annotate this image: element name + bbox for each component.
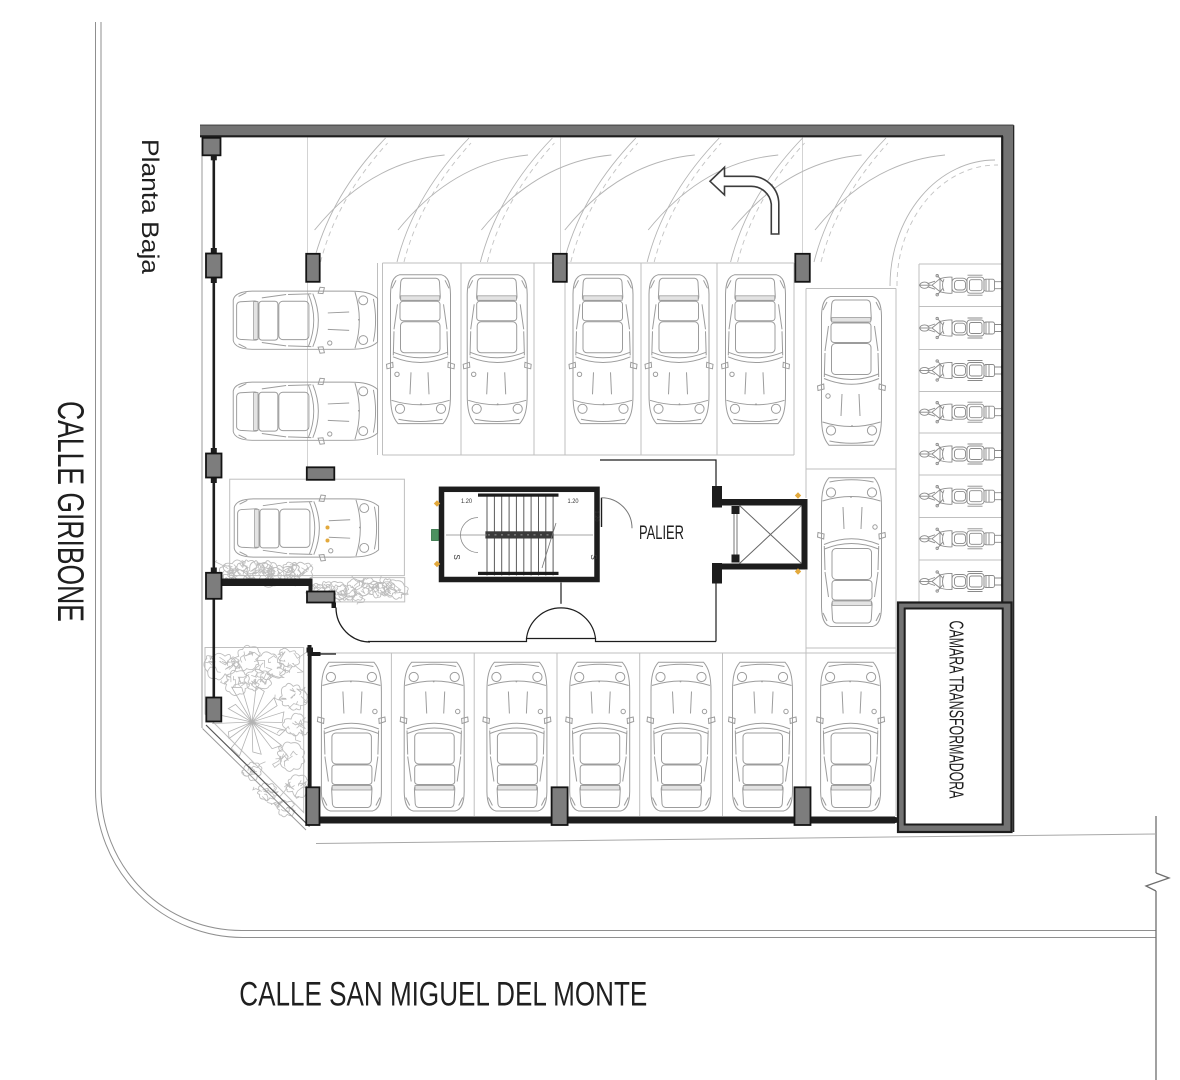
svg-text:CALLE GIRIBONE: CALLE GIRIBONE bbox=[50, 401, 91, 622]
svg-text:S: S bbox=[589, 554, 598, 559]
svg-text:Planta Baja: Planta Baja bbox=[136, 139, 163, 275]
svg-text:1.20: 1.20 bbox=[568, 498, 579, 505]
svg-text:PALIER: PALIER bbox=[639, 523, 684, 544]
svg-text:1.20: 1.20 bbox=[593, 511, 600, 522]
svg-text:CAMARA TRANSFORMADORA: CAMARA TRANSFORMADORA bbox=[945, 621, 967, 799]
svg-text:S: S bbox=[452, 554, 461, 559]
svg-text:CALLE SAN MIGUEL DEL MONTE: CALLE SAN MIGUEL DEL MONTE bbox=[239, 975, 647, 1013]
svg-text:1.20: 1.20 bbox=[461, 498, 472, 505]
